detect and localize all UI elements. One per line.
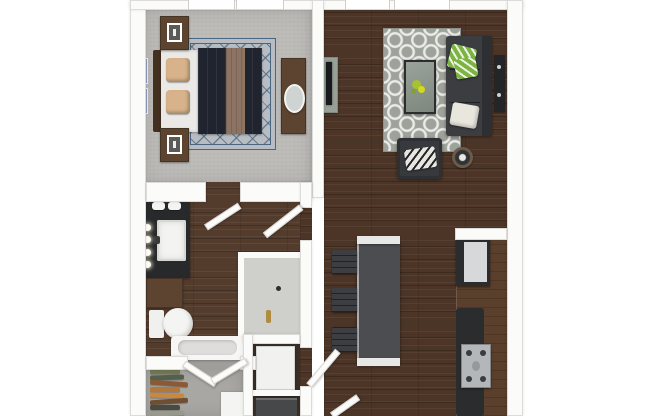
kitchen-island xyxy=(357,243,400,359)
window xyxy=(236,0,284,10)
bed-pillow xyxy=(166,90,190,114)
bed-throw-blanket xyxy=(226,48,245,134)
armchair-pillow-zebra xyxy=(404,146,438,171)
coffee-table xyxy=(404,60,436,114)
wall-right xyxy=(507,0,523,416)
flower-decor xyxy=(418,86,425,93)
wall-hall xyxy=(300,386,312,416)
sofa-pillow-white xyxy=(449,102,480,129)
wall-console-table xyxy=(494,55,505,112)
bedroom-door-threshold xyxy=(206,182,240,202)
sofa-backrest xyxy=(482,36,492,136)
shower-fixture xyxy=(266,310,271,323)
towel-roll xyxy=(168,202,181,210)
dresser-mirror xyxy=(284,84,305,113)
nightstand xyxy=(160,16,189,50)
bed-pillow xyxy=(166,58,190,82)
window xyxy=(188,0,235,10)
hanging-clothes-item xyxy=(150,405,180,410)
walk-in-shower xyxy=(238,252,308,340)
picture-frame xyxy=(167,23,182,42)
bar-stool xyxy=(332,250,357,274)
utility-shelf xyxy=(253,390,300,396)
faucet xyxy=(154,236,160,244)
kitchen-island-end-cap xyxy=(357,358,400,366)
refrigerator xyxy=(456,238,490,286)
wall-utility-left xyxy=(243,334,253,416)
bar-stool xyxy=(332,288,357,312)
vanity-sink xyxy=(157,220,186,261)
wall-bedroom-living-divider xyxy=(312,0,324,198)
shower-floor xyxy=(244,258,302,334)
closet-clothes-rack xyxy=(150,368,188,416)
wall-bedroom-south xyxy=(146,182,206,202)
tv xyxy=(326,62,332,105)
wall-hall xyxy=(300,240,312,348)
wall-hall xyxy=(300,182,312,208)
hanging-clothes-item xyxy=(150,387,180,392)
water-heater xyxy=(256,346,295,390)
decor-item xyxy=(497,65,501,69)
hall-door-threshold xyxy=(300,208,312,240)
window xyxy=(345,0,390,10)
decor-item xyxy=(497,93,501,97)
window xyxy=(394,0,450,10)
shower-drain xyxy=(276,286,281,291)
picture-frame xyxy=(167,135,182,154)
toilet-tank xyxy=(149,310,164,338)
nightstand xyxy=(160,128,189,162)
towel-roll xyxy=(152,202,165,210)
sofa-pillow-green xyxy=(453,56,478,80)
toilet-bowl xyxy=(163,308,193,339)
range-center xyxy=(472,361,480,371)
refrigerator-top xyxy=(464,242,487,282)
closet-storage-box xyxy=(221,392,244,416)
range-stove xyxy=(461,344,491,388)
washer-dryer xyxy=(256,398,297,416)
wall-bathroom-south xyxy=(146,356,188,370)
wall-left xyxy=(130,0,146,416)
floor-plan-canvas xyxy=(0,0,652,416)
wall-kitchen-return xyxy=(455,228,507,240)
bathtub-basin xyxy=(178,340,237,355)
side-table xyxy=(452,147,473,168)
kitchen-island-end-cap xyxy=(357,236,400,244)
flower-decor xyxy=(411,89,416,94)
bathroom-cabinet xyxy=(146,278,183,308)
